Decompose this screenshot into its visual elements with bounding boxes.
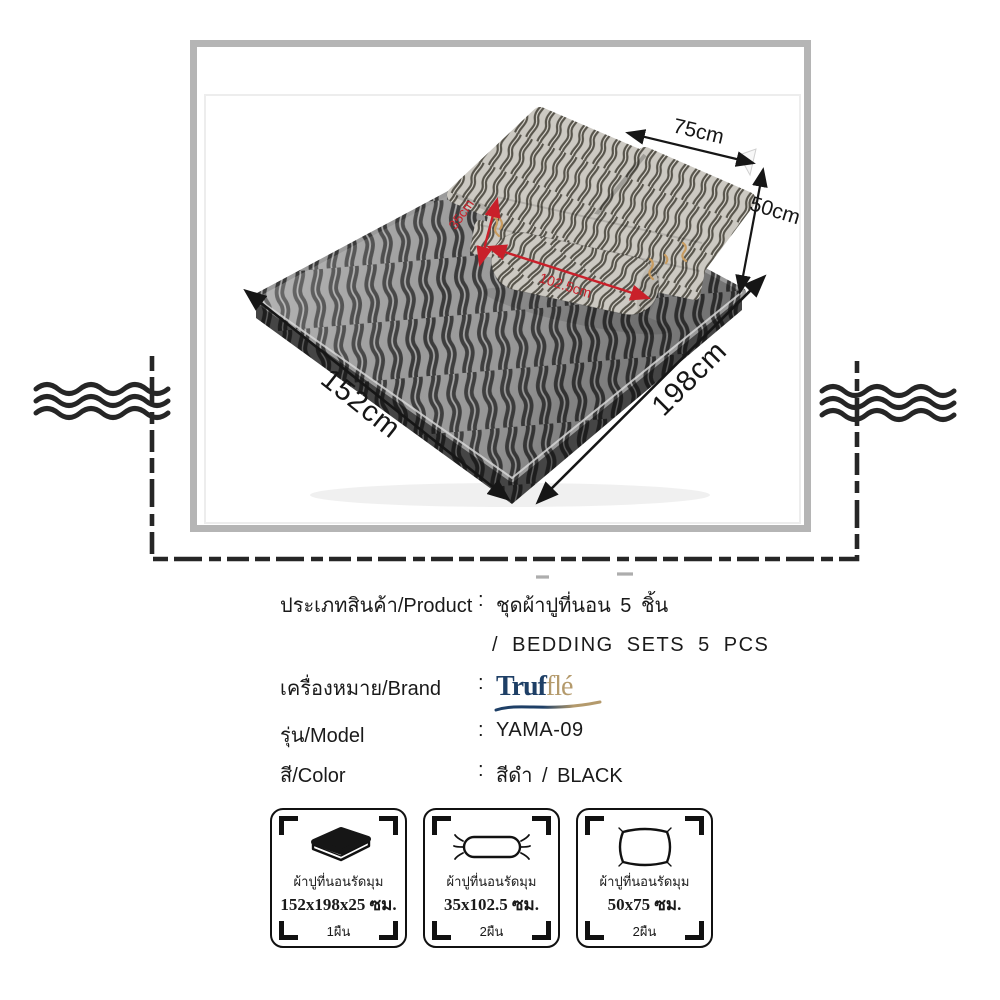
corner-bracket-icon — [685, 921, 704, 940]
spec-size: 50x75 ซม. — [578, 891, 711, 918]
logo-text-navy: Truf — [496, 671, 546, 702]
color-label: สี/Color — [280, 759, 478, 791]
spec-box-fitted-sheet: ผ้าปูที่นอนรัดมุม 152x198x25 ซม. 1ผืน — [270, 808, 407, 948]
spec-label: ผ้าปูที่นอนรัดมุม — [272, 875, 405, 889]
spec-size: 152x198x25 ซม. — [272, 891, 405, 918]
corner-bracket-icon — [532, 921, 551, 940]
corner-bracket-icon — [585, 816, 604, 835]
corner-bracket-icon — [379, 816, 398, 835]
color-value: สีดำ / BLACK — [496, 759, 623, 791]
spec-size: 35x102.5 ซม. — [425, 891, 558, 918]
product-row-english: / BEDDING SETS 5 PCS — [490, 634, 769, 657]
corner-bracket-icon — [279, 921, 298, 940]
corner-bracket-icon — [685, 816, 704, 835]
photo-frame: 35cm 102.5cm 75cm 50cm 152cm 198cm — [190, 40, 811, 532]
left-squiggle-lines — [36, 385, 168, 418]
spec-box-pillow-case: ผ้าปูที่นอนรัดมุม 50x75 ซม. 2ผืน — [576, 808, 713, 948]
product-value-english: / BEDDING SETS 5 PCS — [492, 634, 769, 657]
model-label: รุ่น/Model — [280, 719, 478, 751]
color-row: สี/Color : สีดำ / BLACK — [280, 759, 623, 791]
corner-bracket-icon — [585, 921, 604, 940]
corner-bracket-icon — [279, 816, 298, 835]
pillow-icon — [612, 822, 678, 872]
mattress-icon — [301, 824, 377, 870]
corner-bracket-icon — [379, 921, 398, 940]
model-row: รุ่น/Model : YAMA-09 — [280, 719, 584, 751]
brand-label: เครื่องหมาย/Brand — [280, 672, 478, 704]
spec-label: ผ้าปูที่นอนรัดมุม — [578, 875, 711, 889]
colon: : — [478, 719, 494, 742]
colon: : — [478, 589, 494, 612]
product-row: ประเภทสินค้า/Product : ชุดผ้าปูที่นอน 5 … — [280, 589, 668, 621]
truffle-brand-logo: Trufflé — [496, 672, 572, 714]
logo-text-tan: flé — [546, 671, 573, 702]
brand-row: เครื่องหมาย/Brand : Trufflé — [280, 672, 572, 714]
spec-label: ผ้าปูที่นอนรัดมุม — [425, 875, 558, 889]
ink-specks — [536, 574, 633, 577]
bed-photo: 35cm 102.5cm 75cm 50cm 152cm 198cm — [197, 47, 804, 525]
bolster-icon — [449, 829, 535, 865]
right-squiggle-lines — [822, 387, 954, 420]
corner-bracket-icon — [432, 921, 451, 940]
product-value-thai: ชุดผ้าปูที่นอน 5 ชิ้น — [496, 589, 668, 621]
spec-boxes: ผ้าปูที่นอนรัดมุม 152x198x25 ซม. 1ผืน ผ้… — [270, 808, 713, 948]
product-sheet: 35cm 102.5cm 75cm 50cm 152cm 198cm ประเภ… — [0, 0, 1000, 1000]
product-label: ประเภทสินค้า/Product — [280, 589, 478, 621]
logo-swoosh — [494, 700, 604, 714]
colon: : — [478, 672, 494, 695]
corner-bracket-icon — [432, 816, 451, 835]
spec-box-bolster-case: ผ้าปูที่นอนรัดมุม 35x102.5 ซม. 2ผืน — [423, 808, 560, 948]
corner-bracket-icon — [532, 816, 551, 835]
colon: : — [478, 759, 494, 782]
model-value: YAMA-09 — [496, 719, 584, 742]
